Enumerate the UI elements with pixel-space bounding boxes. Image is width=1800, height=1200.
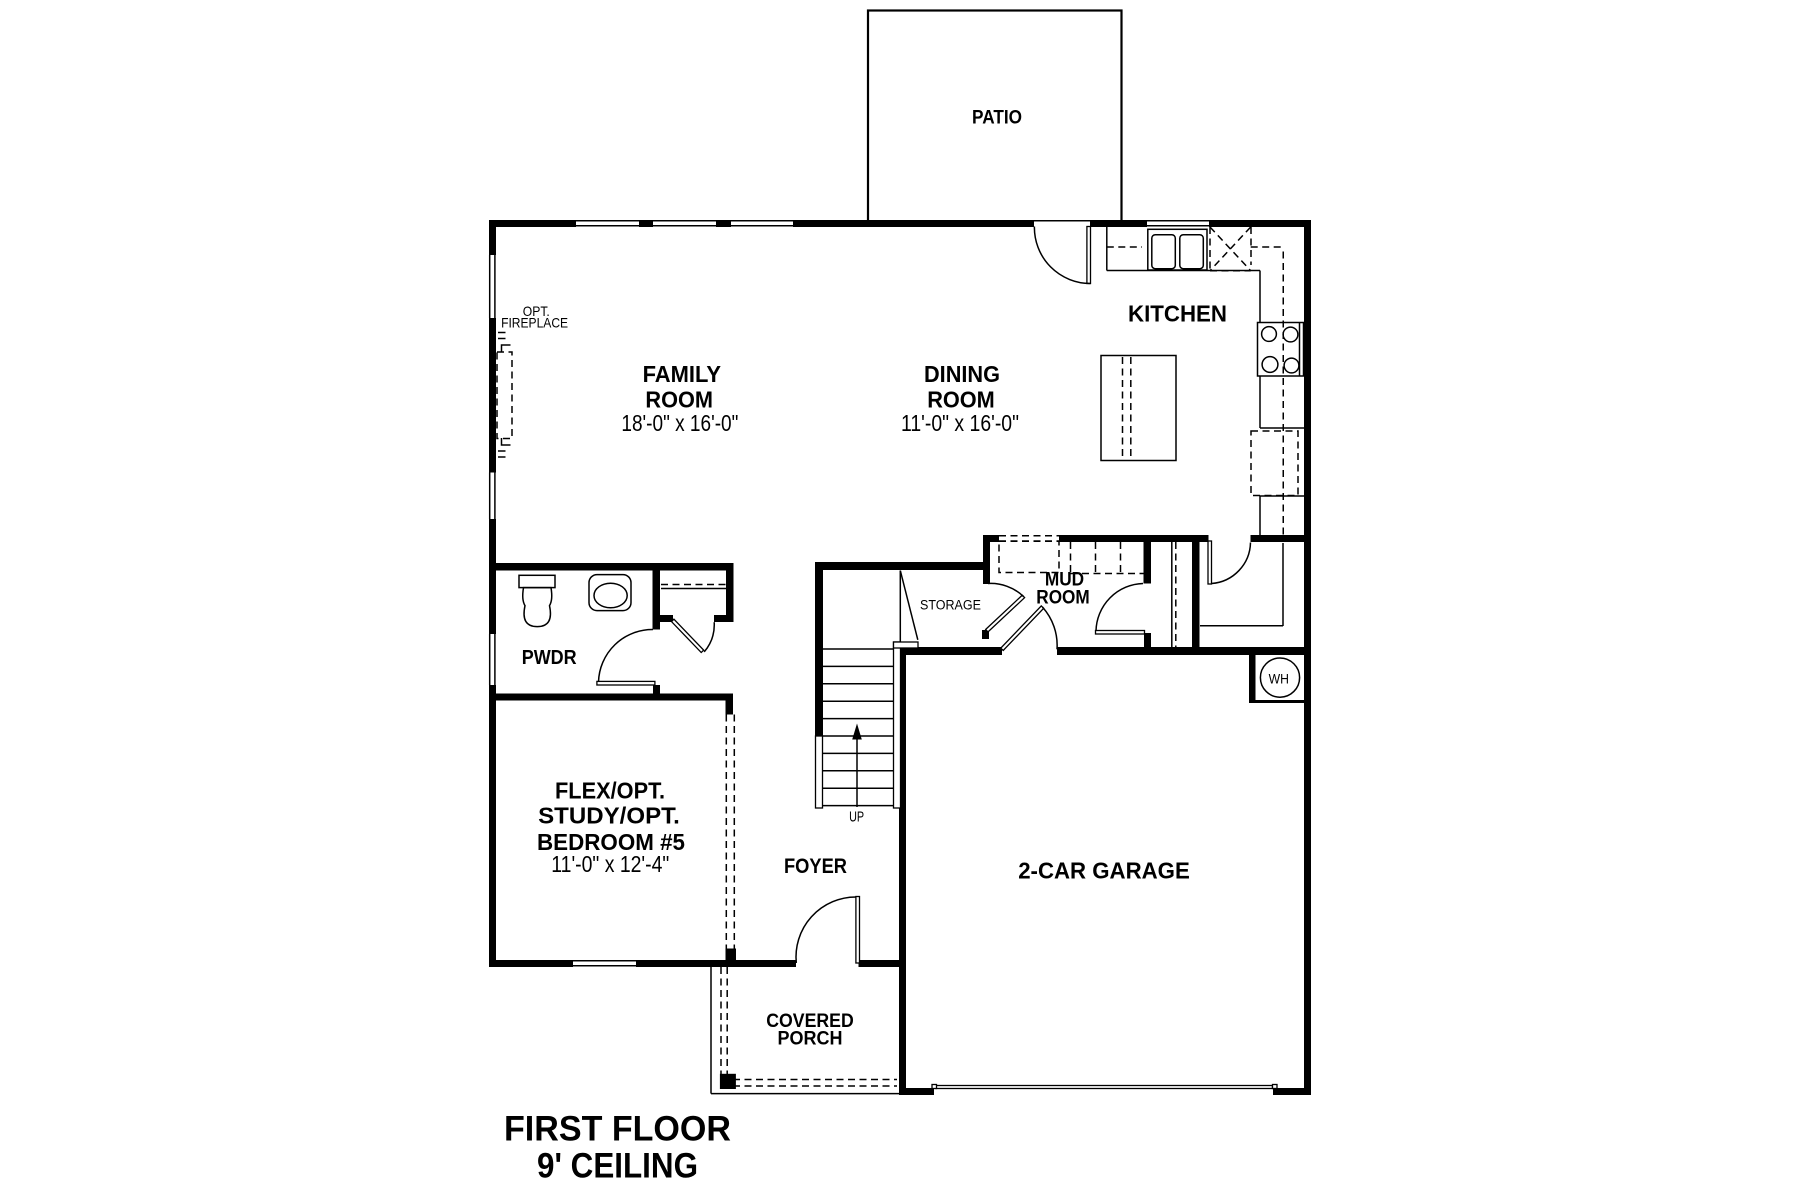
svg-text:PWDR: PWDR — [522, 647, 577, 669]
svg-text:FIRST FLOOR: FIRST FLOOR — [504, 1110, 731, 1149]
svg-text:FLEX/OPT.: FLEX/OPT. — [555, 778, 665, 804]
svg-text:FIREPLACE: FIREPLACE — [501, 315, 568, 331]
svg-text:DINING: DINING — [924, 361, 1000, 387]
svg-text:STORAGE: STORAGE — [920, 598, 981, 613]
svg-text:FOYER: FOYER — [784, 855, 847, 878]
svg-text:PATIO: PATIO — [972, 106, 1022, 128]
svg-text:9' CEILING: 9' CEILING — [537, 1147, 698, 1186]
svg-text:11'-0" x 16'-0": 11'-0" x 16'-0" — [901, 410, 1019, 436]
svg-text:18'-0" x 16'-0": 18'-0" x 16'-0" — [621, 410, 738, 436]
svg-text:STUDY/OPT.: STUDY/OPT. — [538, 803, 680, 829]
svg-text:WH: WH — [1269, 671, 1289, 686]
svg-text:UP: UP — [849, 810, 864, 826]
svg-text:ROOM: ROOM — [1036, 587, 1089, 609]
svg-text:ROOM: ROOM — [927, 386, 995, 412]
svg-text:FAMILY: FAMILY — [643, 361, 721, 387]
svg-text:2-CAR GARAGE: 2-CAR GARAGE — [1018, 858, 1190, 884]
svg-text:11'-0" x 12'-4": 11'-0" x 12'-4" — [551, 851, 669, 877]
svg-text:KITCHEN: KITCHEN — [1128, 301, 1227, 327]
svg-text:PORCH: PORCH — [778, 1029, 843, 1050]
svg-text:ROOM: ROOM — [645, 386, 713, 412]
